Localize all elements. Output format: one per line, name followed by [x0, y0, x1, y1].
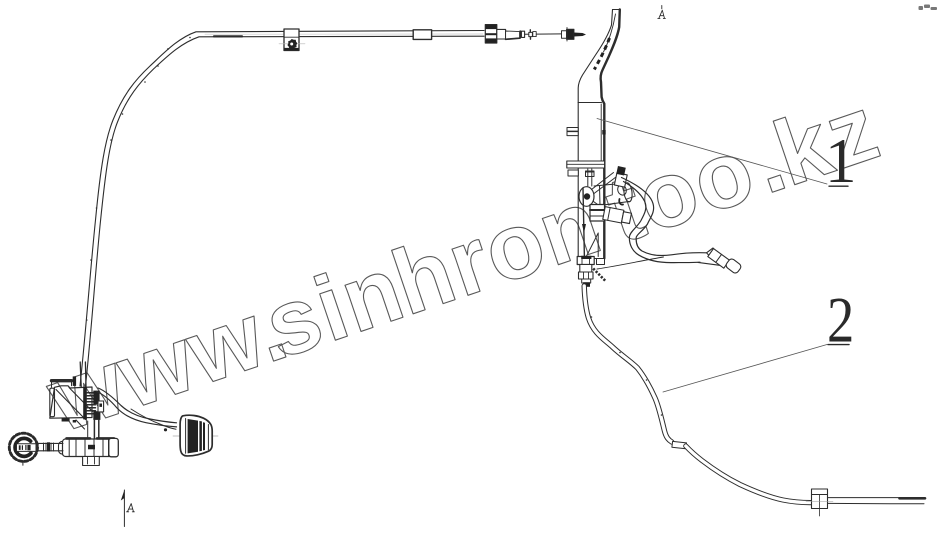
svg-text:1: 1 [825, 126, 857, 196]
svg-text:www.sinhrontoo.kz: www.sinhrontoo.kz [34, 75, 891, 452]
